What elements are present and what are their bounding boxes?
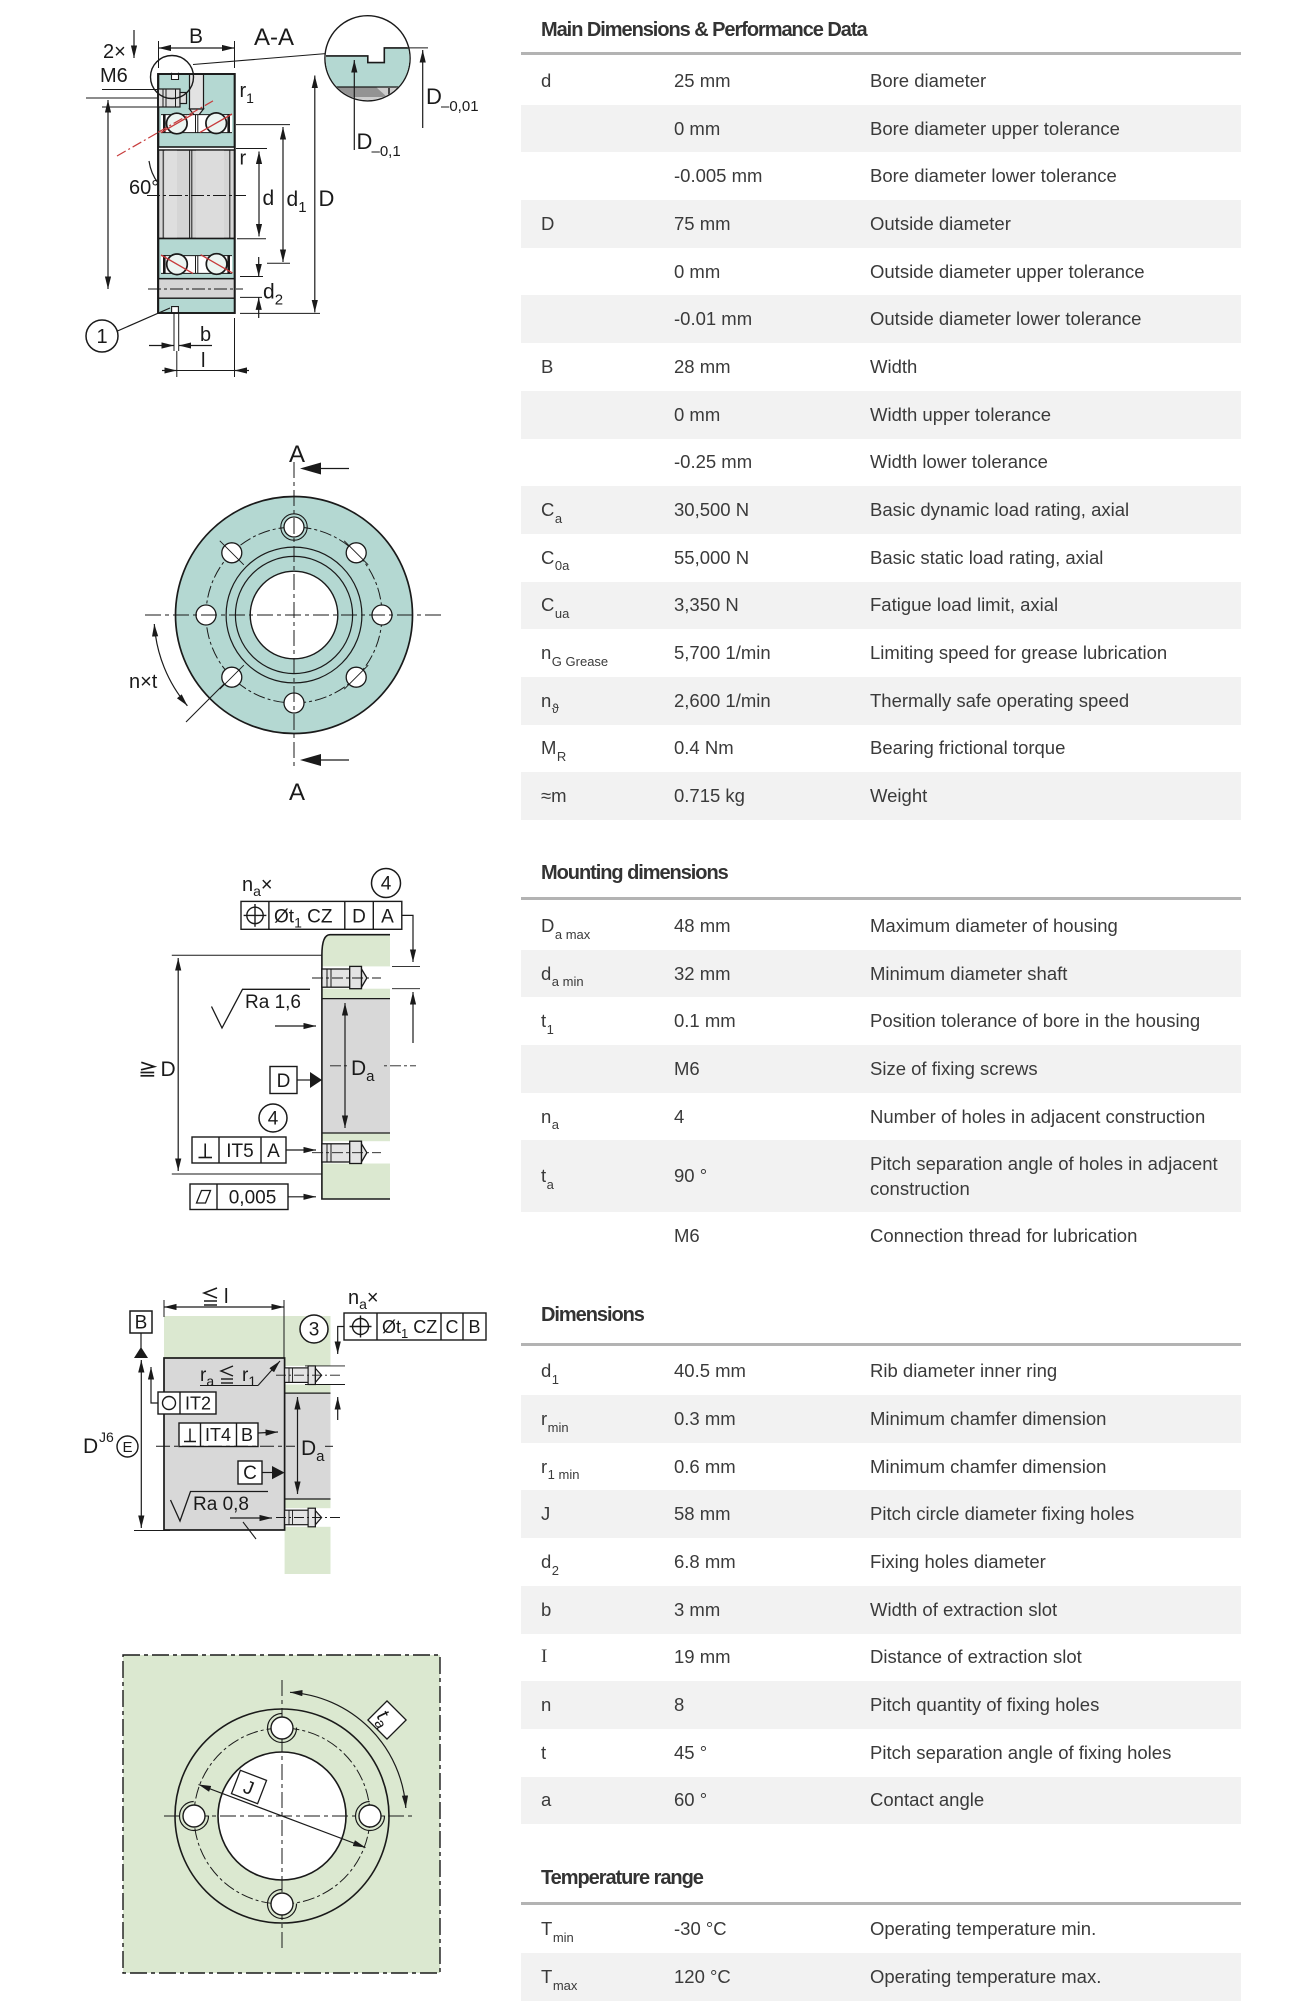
svg-text:B: B bbox=[241, 1425, 253, 1445]
svg-text:D: D bbox=[83, 1435, 98, 1458]
svg-text:IT2: IT2 bbox=[185, 1394, 211, 1414]
svg-text:C: C bbox=[243, 1463, 257, 1484]
svg-text:d2: d2 bbox=[263, 281, 283, 309]
svg-text:E: E bbox=[122, 1439, 132, 1456]
svg-text:4: 4 bbox=[268, 1109, 279, 1130]
svg-text:A-A: A-A bbox=[254, 24, 294, 51]
svg-text:2×: 2× bbox=[103, 41, 126, 63]
svg-text:B: B bbox=[189, 25, 203, 48]
svg-text:J6: J6 bbox=[99, 1429, 114, 1445]
svg-text:IT4: IT4 bbox=[205, 1425, 231, 1445]
svg-text:3: 3 bbox=[309, 1320, 320, 1341]
svg-text:A: A bbox=[267, 1141, 280, 1162]
svg-text:IT5: IT5 bbox=[226, 1141, 253, 1162]
svg-text:A: A bbox=[289, 779, 305, 806]
svg-text:l: l bbox=[201, 350, 205, 372]
svg-text:C: C bbox=[446, 1317, 459, 1337]
svg-text:Øt1 CZ: Øt1 CZ bbox=[274, 907, 333, 931]
svg-text:A: A bbox=[381, 907, 394, 928]
svg-text:A: A bbox=[289, 441, 305, 468]
svg-text:D: D bbox=[352, 907, 366, 928]
svg-text:1: 1 bbox=[96, 326, 107, 348]
svg-text:r: r bbox=[240, 148, 247, 170]
svg-text:n×t: n×t bbox=[129, 671, 158, 693]
svg-text:B: B bbox=[135, 1313, 148, 1334]
svg-text:–0,1: –0,1 bbox=[372, 143, 401, 160]
svg-text:na×: na× bbox=[348, 1287, 379, 1312]
svg-text:0,005: 0,005 bbox=[229, 1188, 277, 1209]
svg-text:l: l bbox=[224, 1286, 228, 1308]
svg-text:d: d bbox=[263, 187, 275, 210]
svg-text:D: D bbox=[161, 1058, 176, 1081]
svg-text:M6: M6 bbox=[100, 65, 128, 87]
svg-text:Ra 0,8: Ra 0,8 bbox=[193, 1494, 249, 1515]
svg-text:D: D bbox=[319, 186, 335, 211]
svg-text:B: B bbox=[468, 1317, 480, 1337]
svg-text:D: D bbox=[426, 84, 442, 109]
svg-text:r1: r1 bbox=[240, 80, 255, 106]
svg-text:D: D bbox=[357, 129, 373, 154]
svg-text:Ra 1,6: Ra 1,6 bbox=[245, 992, 301, 1013]
svg-text:4: 4 bbox=[381, 874, 392, 895]
svg-text:–0,01: –0,01 bbox=[441, 98, 479, 115]
svg-text:D: D bbox=[277, 1071, 291, 1092]
svg-text:d1: d1 bbox=[287, 188, 307, 216]
svg-text:na×: na× bbox=[242, 874, 273, 899]
svg-text:b: b bbox=[200, 324, 211, 346]
